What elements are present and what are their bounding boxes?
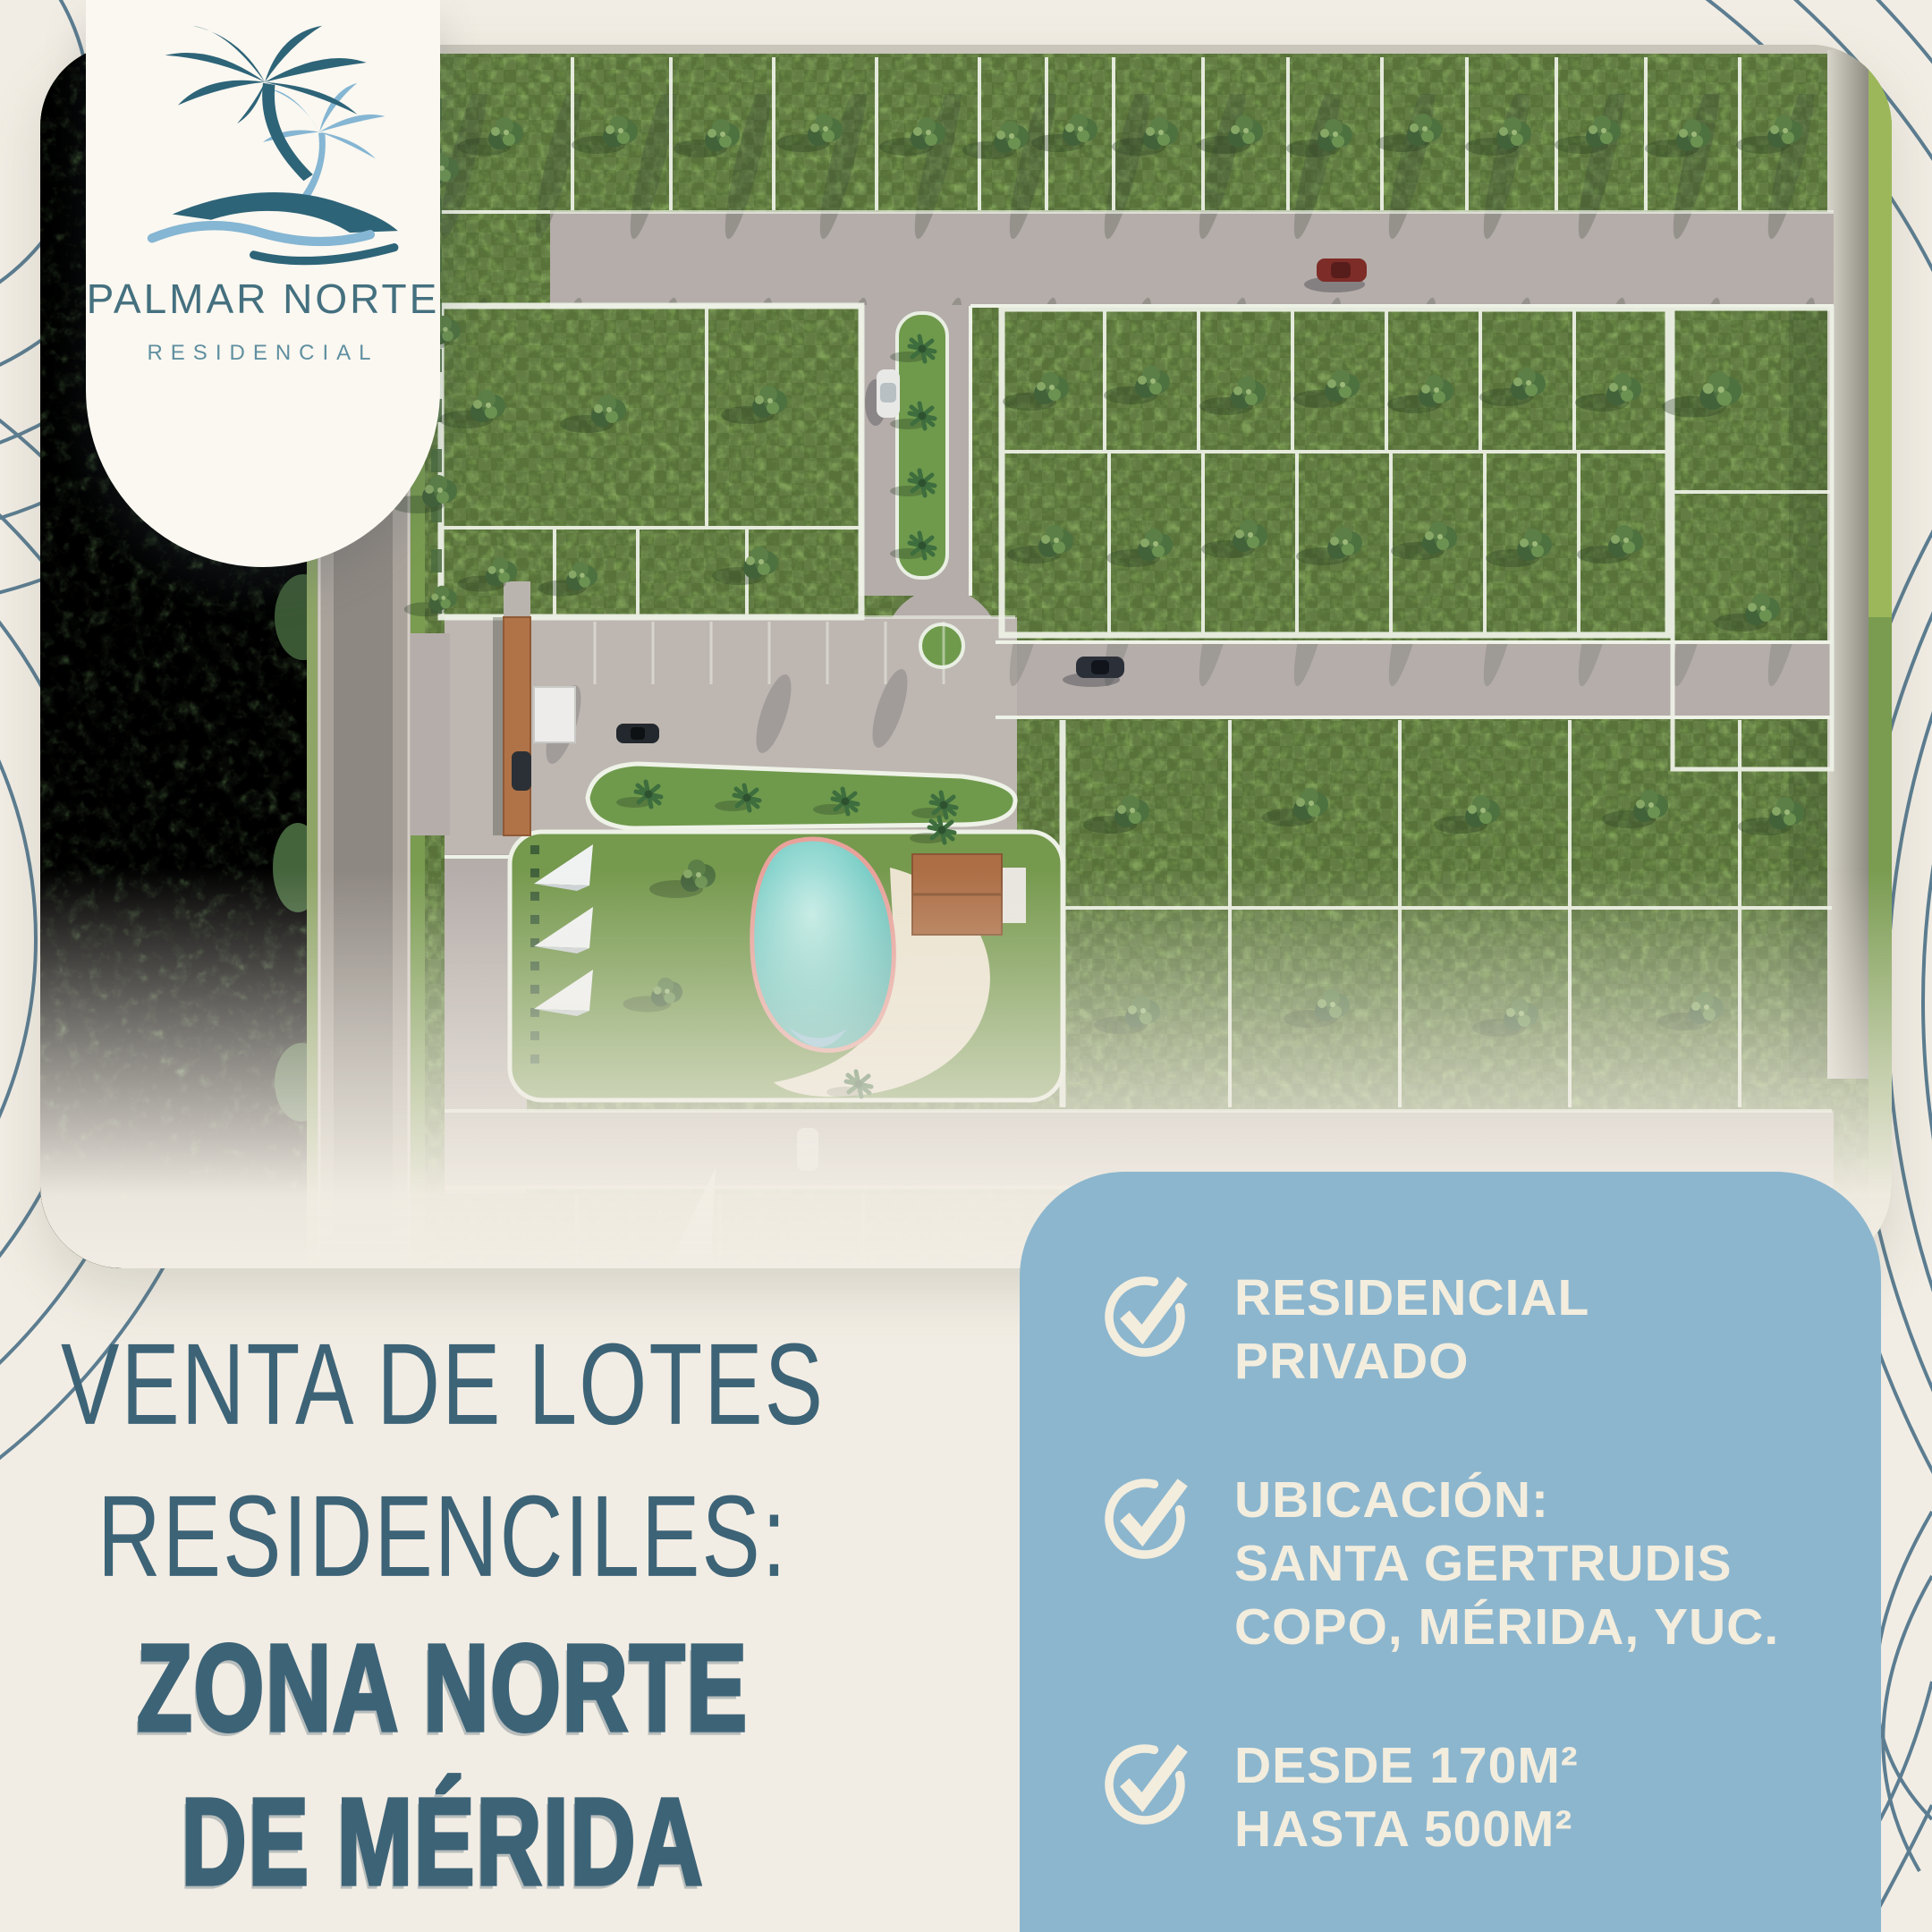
feature-item-size: DESDE 170M² HASTA 500M²	[1095, 1734, 1824, 1861]
entrance-car	[512, 751, 531, 791]
palm-island-waves-icon	[124, 23, 402, 267]
feature-item-location: UBICACIÓN: SANTA GERTRUDIS COPO, MÉRIDA,…	[1095, 1469, 1824, 1659]
checkmark-circle-icon	[1095, 1469, 1195, 1569]
feature-text: UBICACIÓN: SANTA GERTRUDIS COPO, MÉRIDA,…	[1234, 1469, 1779, 1659]
feature-text: DESDE 170M² HASTA 500M²	[1234, 1734, 1579, 1861]
roundabout	[920, 624, 963, 667]
brand-name: PALMAR NORTE	[86, 275, 440, 323]
brand-tagline: RESIDENCIAL	[86, 341, 440, 366]
entrance-gate-roof	[504, 617, 530, 835]
feature-text: RESIDENCIAL PRIVADO	[1234, 1267, 1589, 1394]
logo-card: PALMAR NORTE RESIDENCIAL	[86, 0, 440, 567]
wave-light	[152, 225, 370, 241]
checkmark-circle-icon	[1095, 1734, 1195, 1835]
wave-dark	[254, 248, 394, 261]
primary-palm	[165, 26, 397, 233]
feature-item-private: RESIDENCIAL PRIVADO	[1095, 1267, 1824, 1394]
entrance-canopy	[534, 687, 575, 742]
tree-shadows	[438, 94, 1834, 305]
features-card: RESIDENCIAL PRIVADO UBICACIÓN: SANTA GER…	[1020, 1172, 1881, 1932]
headline-line-4: DE MÉRIDA	[45, 1738, 841, 1932]
checkmark-circle-icon	[1095, 1267, 1195, 1367]
parked-car	[616, 724, 659, 743]
headline: VENTA DE LOTES RESIDENCILES: ZONA NORTE …	[45, 1308, 841, 1919]
flyer-canvas: { "page": { "background_color": "#f2ede4…	[0, 0, 1932, 1932]
gatehouse	[504, 581, 530, 617]
